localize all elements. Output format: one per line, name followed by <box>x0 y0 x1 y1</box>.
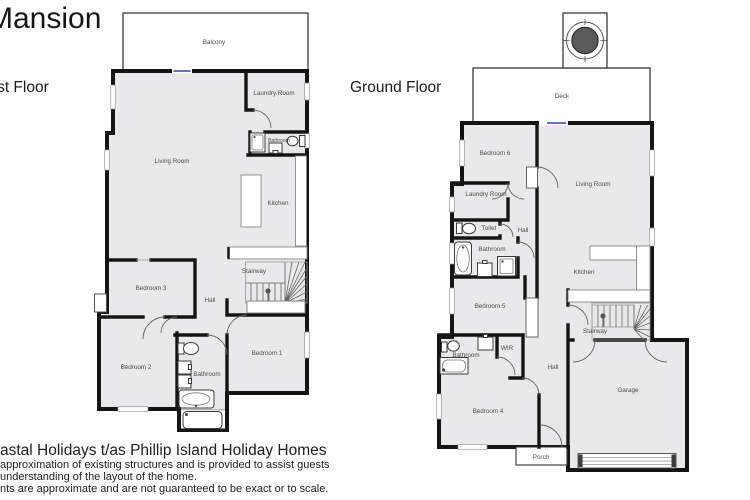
toilet-icon <box>178 343 199 355</box>
room-label-stairway: Stairway <box>583 328 608 335</box>
washbasin-icon <box>269 143 282 154</box>
room-label-bedroom5: Bedroom 5 <box>475 303 506 310</box>
room-label-deck: Deck <box>555 93 570 100</box>
bay-window <box>95 294 107 312</box>
spa-bath-icon <box>183 412 222 429</box>
room-label-hall: Hall <box>205 297 216 304</box>
room-label-bathroom-lower: Bathroom <box>193 371 220 378</box>
pocket-door <box>526 298 538 337</box>
room-label-toilet: Toilet <box>482 225 497 232</box>
kitchen-bench <box>568 290 650 302</box>
ground-floor-plan: Deck Bedroom 6 Living Room Laundry Room … <box>437 13 687 470</box>
toilet-icon <box>457 223 476 234</box>
bathtub-icon <box>455 242 472 275</box>
window <box>650 228 655 246</box>
room-label-hall-upper: Hall <box>518 227 529 234</box>
room-label-stairway: Stairway <box>242 268 267 275</box>
room-label-kitchen: Kitchen <box>267 200 289 207</box>
room-label-bedroom6: Bedroom 6 <box>480 150 511 157</box>
room-label-wir: WIR <box>501 345 514 352</box>
window <box>305 332 310 358</box>
toilet-icon <box>442 341 460 352</box>
kitchen-counter <box>637 246 651 290</box>
room-label-bedroom1: Bedroom 1 <box>252 350 283 357</box>
shower-icon <box>498 257 516 277</box>
window <box>111 85 116 109</box>
room-label-kitchen: Kitchen <box>573 269 595 276</box>
room-label-hall-lower: Hall <box>548 364 559 371</box>
window <box>460 140 465 166</box>
shower-icon <box>440 358 468 375</box>
footer-disclaimer-line-2: understanding of the layout of the home. <box>0 471 197 483</box>
kitchen-counter <box>590 246 637 260</box>
room-label-laundry: Laundry Room <box>465 191 506 198</box>
room-label-porch: Porch <box>533 454 550 461</box>
footer-disclaimer-line-1: approximation of existing structures and… <box>0 459 330 471</box>
room-label-laundry: Laundry Room <box>253 90 294 97</box>
footer-company-line: astal Holidays t/as Phillip Island Holid… <box>0 442 327 460</box>
window <box>105 150 110 170</box>
stair-landing <box>247 301 305 313</box>
window <box>437 394 442 419</box>
window <box>450 197 455 212</box>
kitchen-bench <box>228 247 307 259</box>
room-label-bathroom-lower: Bathroom <box>452 352 479 359</box>
closet <box>527 167 538 188</box>
kitchen-counter <box>296 156 307 246</box>
kitchen-island <box>241 175 261 227</box>
window <box>450 243 455 264</box>
room-label-garage: Garage <box>617 387 639 394</box>
room-label-bedroom2: Bedroom 2 <box>121 364 152 371</box>
first-floor-plan: Balcony Laundry Room Bathroom Living Roo… <box>95 13 310 430</box>
footer-disclaimer-line-3: nts are approximate and are not guarante… <box>0 483 328 495</box>
window <box>305 83 310 100</box>
window <box>118 407 148 412</box>
washbasin-icon <box>478 261 493 277</box>
window <box>450 288 455 314</box>
room-label-bathroom-upper: Bathroom <box>478 246 505 253</box>
room-label-bathroom-upper: Bathroom <box>268 138 290 144</box>
room-label-living: Living Room <box>576 181 611 188</box>
room-label-living: Living Room <box>155 158 190 165</box>
window <box>458 445 487 450</box>
bathtub-icon <box>179 390 214 408</box>
room-label-bedroom4: Bedroom 4 <box>473 408 504 415</box>
vanity-icon <box>178 361 192 388</box>
sliding-door-icon <box>539 121 568 126</box>
garage-door-icon <box>578 454 676 469</box>
room-label-balcony: Balcony <box>203 39 226 46</box>
sliding-door-icon <box>172 69 192 74</box>
room-label-bedroom3: Bedroom 3 <box>136 285 167 292</box>
floor-plan-svg: Balcony Laundry Room Bathroom Living Roo… <box>0 0 750 500</box>
shower-icon <box>250 133 265 152</box>
cabinet-icon <box>478 335 493 351</box>
window <box>650 150 655 176</box>
